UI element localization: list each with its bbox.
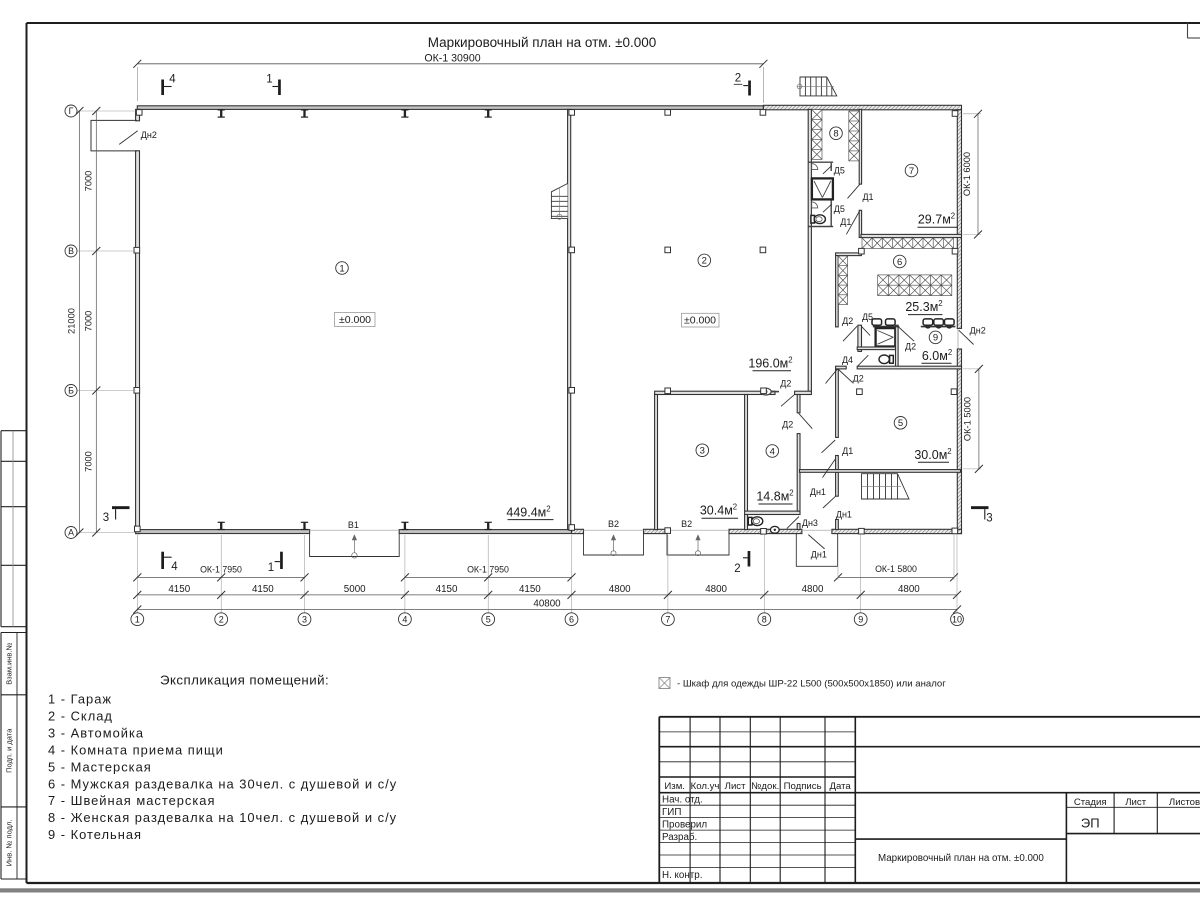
svg-text:Д5: Д5 xyxy=(834,204,845,214)
svg-text:ОК-1 30900: ОК-1 30900 xyxy=(424,53,480,65)
svg-text:5: 5 xyxy=(486,614,491,624)
svg-text:Д5: Д5 xyxy=(862,312,873,322)
svg-text:Д5: Д5 xyxy=(834,166,845,176)
svg-text:ОК-1 7950: ОК-1 7950 xyxy=(200,565,242,575)
svg-text:10: 10 xyxy=(952,614,962,624)
svg-text:8: 8 xyxy=(762,614,767,624)
svg-text:1: 1 xyxy=(266,74,272,86)
svg-text:2: 2 xyxy=(735,73,741,85)
svg-text:Н. контр.: Н. контр. xyxy=(662,870,702,881)
svg-text:А: А xyxy=(68,528,74,538)
svg-text:Б: Б xyxy=(68,386,74,396)
svg-text:Подп. и дата: Подп. и дата xyxy=(5,728,14,773)
svg-text:25.3м2: 25.3м2 xyxy=(905,299,942,314)
svg-text:4150: 4150 xyxy=(519,584,541,595)
svg-text:449.4м2: 449.4м2 xyxy=(506,505,550,520)
svg-text:7: 7 xyxy=(665,614,670,624)
svg-text:6 - Мужская раздевалка на 30че: 6 - Мужская раздевалка на 30чел. с душев… xyxy=(48,776,397,791)
svg-text:ГИП: ГИП xyxy=(662,807,681,818)
svg-text:6: 6 xyxy=(569,614,574,624)
svg-text:Д1: Д1 xyxy=(842,446,853,456)
svg-text:4800: 4800 xyxy=(898,584,920,595)
svg-text:4: 4 xyxy=(402,614,407,624)
svg-text:40800: 40800 xyxy=(533,598,561,609)
svg-text:Д2: Д2 xyxy=(780,378,791,388)
svg-text:В: В xyxy=(68,246,74,256)
svg-text:±0.000: ±0.000 xyxy=(339,314,371,326)
svg-text:30.0м2: 30.0м2 xyxy=(914,447,951,462)
svg-text:3: 3 xyxy=(103,512,109,524)
svg-text:2 - Склад: 2 - Склад xyxy=(48,708,113,723)
svg-text:30.4м2: 30.4м2 xyxy=(700,503,737,518)
svg-text:Д2: Д2 xyxy=(853,373,864,383)
svg-text:7000: 7000 xyxy=(83,311,93,332)
svg-text:±0.000: ±0.000 xyxy=(684,315,716,327)
svg-text:ОК-1 6000: ОК-1 6000 xyxy=(962,152,972,196)
svg-text:5: 5 xyxy=(898,418,903,429)
svg-text:196.0м2: 196.0м2 xyxy=(748,356,792,371)
svg-text:4: 4 xyxy=(169,74,176,86)
svg-text:Инв. № подл.: Инв. № подл. xyxy=(5,820,14,867)
svg-text:8: 8 xyxy=(833,129,838,140)
svg-text:29.7м2: 29.7м2 xyxy=(918,212,955,227)
svg-text:Листов: Листов xyxy=(1169,797,1200,808)
svg-text:2: 2 xyxy=(219,614,224,624)
svg-text:4800: 4800 xyxy=(609,584,631,595)
svg-text:ЭП: ЭП xyxy=(1081,816,1100,831)
svg-text:7: 7 xyxy=(909,166,914,177)
svg-text:Лист: Лист xyxy=(725,781,746,792)
svg-text:4 - Комната приема пищи: 4 - Комната приема пищи xyxy=(48,742,224,757)
svg-text:7000: 7000 xyxy=(83,171,93,192)
svg-text:1: 1 xyxy=(339,263,344,274)
svg-text:Д2: Д2 xyxy=(842,316,853,326)
svg-text:Изм.: Изм. xyxy=(664,781,685,792)
svg-text:Дн2: Дн2 xyxy=(141,130,157,140)
svg-text:8 - Женская раздевалка на 10че: 8 - Женская раздевалка на 10чел. с душев… xyxy=(48,810,397,825)
svg-text:4150: 4150 xyxy=(168,584,190,595)
svg-text:Дн3: Дн3 xyxy=(802,518,818,528)
svg-text:Д2: Д2 xyxy=(782,420,793,430)
svg-text:5 - Мастерская: 5 - Мастерская xyxy=(48,759,152,774)
svg-text:3: 3 xyxy=(302,614,307,624)
svg-text:9 - Котельная: 9 - Котельная xyxy=(48,827,142,842)
svg-text:6: 6 xyxy=(897,257,902,268)
svg-text:1: 1 xyxy=(268,562,274,574)
svg-text:14.8м2: 14.8м2 xyxy=(756,489,793,504)
svg-text:Дн2: Дн2 xyxy=(970,326,986,336)
svg-text:4800: 4800 xyxy=(802,584,824,595)
svg-text:Г: Г xyxy=(69,106,74,116)
svg-text:6.0м2: 6.0м2 xyxy=(922,348,952,363)
svg-text:4800: 4800 xyxy=(705,584,727,595)
svg-text:3: 3 xyxy=(700,446,705,457)
svg-text:Д1: Д1 xyxy=(862,192,873,202)
svg-text:9: 9 xyxy=(858,614,863,624)
svg-text:Кол.уч: Кол.уч xyxy=(691,781,720,792)
svg-text:Стадия: Стадия xyxy=(1074,797,1107,808)
svg-text:Нач. отд.: Нач. отд. xyxy=(662,794,703,805)
svg-text:Д4: Д4 xyxy=(842,355,853,365)
svg-text:№док.: №док. xyxy=(751,781,779,792)
svg-text:7 - Швейная мастерская: 7 - Швейная мастерская xyxy=(48,793,215,808)
svg-text:ОК-1 7950: ОК-1 7950 xyxy=(467,565,509,575)
svg-text:3 - Автомойка: 3 - Автомойка xyxy=(48,725,144,740)
svg-text:Д2: Д2 xyxy=(905,342,916,352)
svg-text:4: 4 xyxy=(770,446,775,457)
svg-text:7000: 7000 xyxy=(83,451,93,472)
svg-text:Подпись: Подпись xyxy=(784,781,822,792)
svg-text:ОК-1 5800: ОК-1 5800 xyxy=(875,564,917,574)
svg-text:Проверил: Проверил xyxy=(662,819,707,830)
svg-text:Дн1: Дн1 xyxy=(810,487,826,497)
svg-text:Разраб.: Разраб. xyxy=(662,832,697,843)
svg-text:Маркировочный план на отм. ±0.: Маркировочный план на отм. ±0.000 xyxy=(878,853,1044,864)
svg-text:5000: 5000 xyxy=(344,584,366,595)
svg-text:Экспликация помещений:: Экспликация помещений: xyxy=(160,673,329,688)
svg-text:4150: 4150 xyxy=(252,584,274,595)
svg-text:Дн1: Дн1 xyxy=(836,510,852,520)
svg-text:Дн1: Дн1 xyxy=(811,550,827,560)
svg-text:2: 2 xyxy=(734,563,740,575)
svg-text:9: 9 xyxy=(933,333,938,344)
svg-text:4: 4 xyxy=(171,561,178,573)
svg-text:21000: 21000 xyxy=(67,308,77,334)
svg-text:В2: В2 xyxy=(608,519,619,529)
svg-text:- Шкаф для одежды ШР-22 L500 (: - Шкаф для одежды ШР-22 L500 (500х500х18… xyxy=(677,679,946,690)
svg-text:Д1: Д1 xyxy=(840,217,851,227)
svg-text:Маркировочный план на отм. ±0.: Маркировочный план на отм. ±0.000 xyxy=(428,35,657,50)
svg-text:Лист: Лист xyxy=(1125,797,1146,808)
svg-text:Взам.инв.№: Взам.инв.№ xyxy=(5,642,14,684)
svg-text:ОК-1 5000: ОК-1 5000 xyxy=(963,397,973,441)
svg-text:4150: 4150 xyxy=(436,584,458,595)
svg-text:Дата: Дата xyxy=(829,781,851,792)
svg-text:3: 3 xyxy=(986,513,992,525)
svg-text:В1: В1 xyxy=(348,520,359,530)
svg-text:1: 1 xyxy=(135,614,140,624)
svg-text:1 - Гараж: 1 - Гараж xyxy=(48,692,112,707)
svg-text:В2: В2 xyxy=(681,519,692,529)
svg-text:2: 2 xyxy=(702,256,707,267)
